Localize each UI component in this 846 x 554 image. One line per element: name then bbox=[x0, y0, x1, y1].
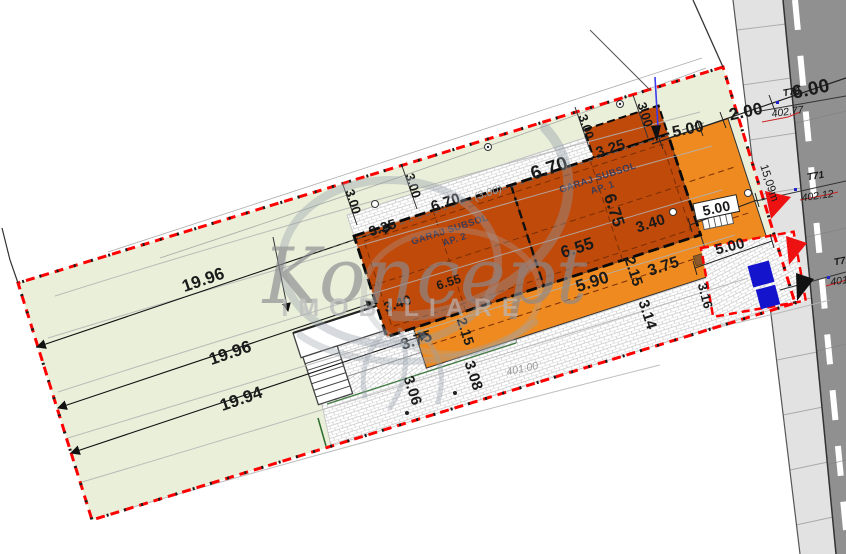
site-plan-drawing: 6.70 (3.00) 6.70 3.25 3.25 6.75 6.55 6.5… bbox=[0, 0, 846, 554]
site-plan-page: 6.70 (3.00) 6.70 3.25 3.25 6.75 6.55 6.5… bbox=[0, 0, 846, 554]
survey-t72-id: T72 bbox=[833, 255, 846, 269]
watermark-subtitle: IMOBILIARE bbox=[281, 294, 528, 322]
survey-t72-elev: 401. bbox=[830, 274, 846, 289]
